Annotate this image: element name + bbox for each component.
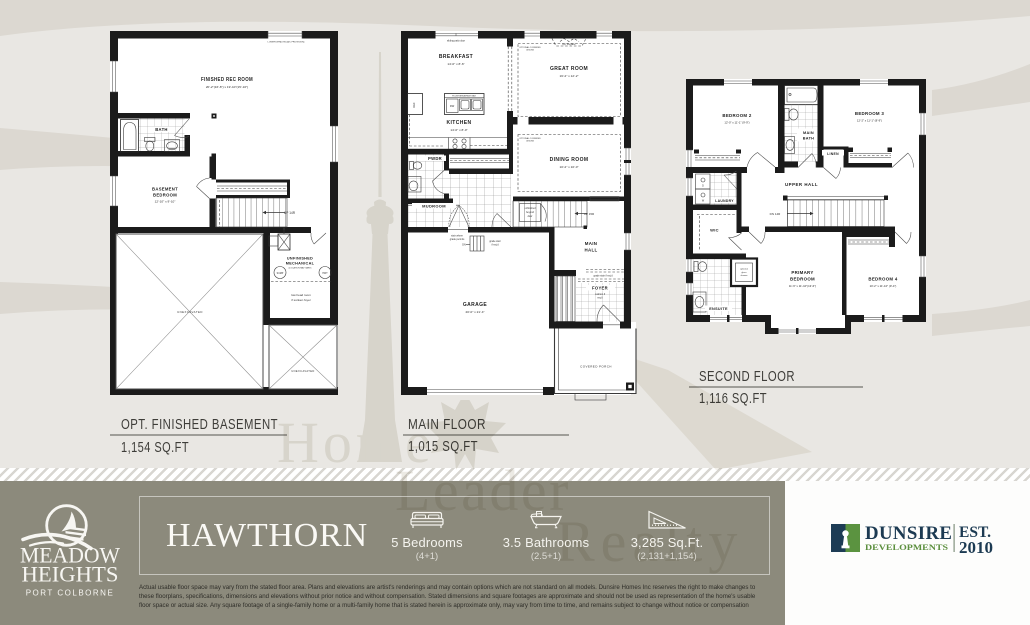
- svg-text:DUNSIRE: DUNSIRE: [865, 523, 952, 544]
- svg-text:PORT COLBORNE: PORT COLBORNE: [26, 589, 115, 598]
- svg-text:DEVELOPMENTS: DEVELOPMENTS: [865, 542, 948, 552]
- svg-text:2010: 2010: [959, 538, 993, 557]
- svg-text:HEIGHTS: HEIGHTS: [22, 562, 119, 587]
